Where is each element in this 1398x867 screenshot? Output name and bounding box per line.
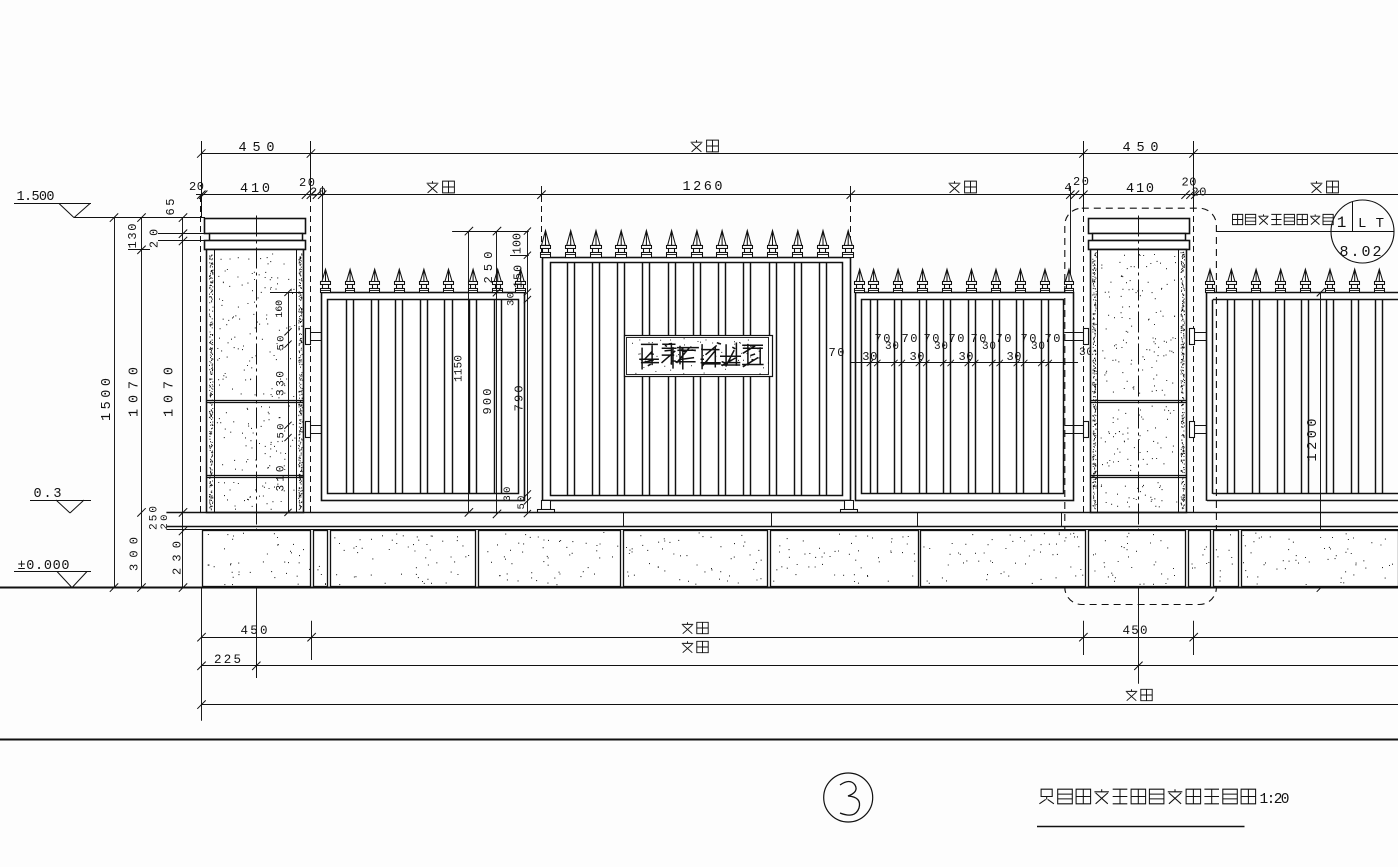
svg-text:30: 30 <box>982 341 996 353</box>
svg-text:30: 30 <box>910 350 925 364</box>
svg-text:0.3: 0.3 <box>34 487 62 502</box>
svg-text:30: 30 <box>1007 350 1022 364</box>
svg-text:±0.000: ±0.000 <box>18 559 70 574</box>
svg-text:30: 30 <box>505 292 517 306</box>
svg-text:410: 410 <box>240 182 270 197</box>
svg-text:450: 450 <box>1123 141 1159 156</box>
svg-text:70: 70 <box>949 332 965 346</box>
svg-text:70: 70 <box>1045 332 1061 346</box>
svg-text:30: 30 <box>862 350 877 364</box>
svg-text:50: 50 <box>516 496 528 510</box>
svg-text:100: 100 <box>512 233 525 254</box>
svg-text:450: 450 <box>1123 624 1148 638</box>
svg-text:310: 310 <box>275 466 287 492</box>
svg-text:70: 70 <box>829 346 845 360</box>
svg-text:250: 250 <box>482 252 496 284</box>
svg-text:230: 230 <box>171 541 185 575</box>
svg-text:70: 70 <box>902 332 918 346</box>
svg-text:130: 130 <box>126 224 140 249</box>
svg-text:225: 225 <box>214 653 241 667</box>
svg-text:1:20: 1:20 <box>1260 792 1290 808</box>
svg-text:410: 410 <box>1126 182 1154 197</box>
svg-text:1150: 1150 <box>453 355 465 382</box>
svg-text:160: 160 <box>275 300 286 318</box>
svg-text:150: 150 <box>512 265 525 288</box>
svg-text:300: 300 <box>128 537 142 571</box>
svg-text:330: 330 <box>275 371 287 396</box>
svg-text:790: 790 <box>513 385 527 411</box>
svg-text:70: 70 <box>996 332 1012 346</box>
svg-text:1.500: 1.500 <box>17 190 55 205</box>
svg-text:30: 30 <box>934 341 948 353</box>
svg-text:20: 20 <box>1073 175 1089 189</box>
svg-text:8.02: 8.02 <box>1340 244 1382 261</box>
svg-text:900: 900 <box>481 389 495 415</box>
svg-text:30: 30 <box>885 341 899 353</box>
svg-text:450: 450 <box>241 624 268 638</box>
svg-text:30: 30 <box>1031 341 1045 353</box>
svg-text:30: 30 <box>959 350 974 364</box>
svg-text:1: 1 <box>1337 214 1347 232</box>
svg-text:20: 20 <box>189 180 204 194</box>
svg-text:20: 20 <box>310 186 326 200</box>
svg-text:450: 450 <box>239 141 275 156</box>
